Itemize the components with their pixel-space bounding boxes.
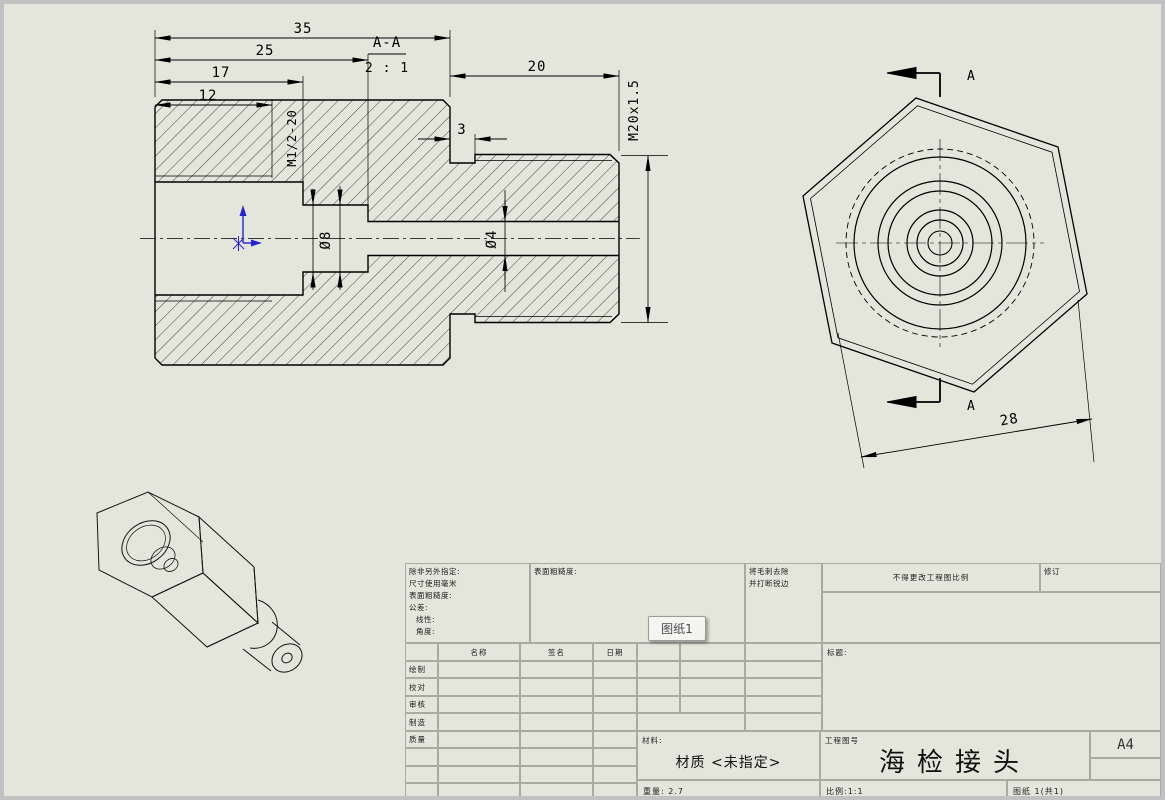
dim-12: 12 (199, 88, 218, 104)
empty-cell (1090, 758, 1161, 780)
dim-3: 3 (457, 122, 466, 138)
row-checked-label: 校对 (409, 682, 426, 693)
sig-cell (520, 696, 593, 713)
isometric-view (97, 492, 308, 678)
sig-extra-cell (637, 643, 680, 661)
sig-cell (593, 783, 637, 800)
section-arrow-label-bottom: A (967, 399, 975, 414)
revision-cell: 修订 (1040, 563, 1161, 592)
small-cell (745, 713, 822, 731)
sig-cell (438, 783, 520, 800)
sig-cell (438, 748, 520, 766)
section-cut-arrows: A A (887, 68, 975, 415)
weight-cell: 重量: 2.7 (637, 780, 820, 800)
sig-cell (637, 661, 680, 678)
sig-empty-cell (405, 748, 438, 766)
sig-cell (520, 783, 593, 800)
scale-cell: 比例:1:1 (820, 780, 1007, 800)
scale-text: 比例:1:1 (826, 786, 864, 797)
sheet-cell: 图纸 1(共1) (1007, 780, 1161, 800)
sig-corner-cell (405, 643, 438, 661)
small-cell (745, 678, 822, 696)
small-cell (745, 643, 822, 661)
sig-empty-cell (405, 783, 438, 800)
note-line: 除非另外指定: (409, 566, 526, 578)
deburr-line: 并打断锐边 (749, 578, 818, 590)
deburr-cell: 将毛刺去除 并打断锐边 (745, 563, 822, 643)
small-cell (745, 661, 822, 678)
material-value: 材质 <未指定> (638, 752, 819, 772)
note-line: 尺寸使用毫米 (409, 578, 526, 590)
sig-cell (637, 696, 680, 713)
sig-cell (680, 678, 745, 696)
sig-cell (520, 678, 593, 696)
sig-cell (593, 731, 637, 748)
sig-cell (593, 766, 637, 783)
sig-cell (680, 661, 745, 678)
sig-cell (637, 678, 680, 696)
sig-cell (593, 661, 637, 678)
paper-size-cell: A4 (1090, 731, 1161, 758)
row-mfg-label: 制造 (409, 717, 426, 728)
note-line: 线性: (409, 614, 526, 626)
row-mfg: 制造 (405, 713, 438, 731)
sig-cell (680, 696, 745, 713)
row-drawn-label: 绘制 (409, 664, 426, 675)
section-view (140, 100, 640, 365)
part-title: 海检接头 (821, 742, 1089, 779)
header-date-label: 日期 (607, 647, 624, 658)
col-header-name: 名称 (438, 643, 520, 661)
revision-label: 修订 (1041, 564, 1160, 580)
sig-cell (520, 731, 593, 748)
col-header-date: 日期 (593, 643, 637, 661)
sig-empty-cell (405, 766, 438, 783)
col-header-signature: 签名 (520, 643, 593, 661)
finish-label: 表面粗糙度: (531, 564, 744, 580)
title-label: 标题: (827, 647, 848, 658)
sig-cell (637, 713, 745, 731)
section-arrow-label-top: A (967, 69, 975, 84)
note-line: 表面粗糙度: (409, 590, 526, 602)
weight-text: 重量: 2.7 (643, 786, 684, 797)
row-qa: 质量 (405, 731, 438, 748)
section-scale: 2 : 1 (365, 61, 409, 76)
sig-cell (438, 713, 520, 731)
note-line: 角度: (409, 626, 526, 638)
sig-cell (438, 731, 520, 748)
thread-callout-internal: M1/2-20 (285, 109, 299, 167)
sig-cell (438, 661, 520, 678)
dim-28: 28 (999, 411, 1020, 430)
sig-cell (520, 661, 593, 678)
sig-cell (438, 766, 520, 783)
dim-35: 35 (294, 21, 313, 37)
row-approved: 审核 (405, 696, 438, 713)
dim-17: 17 (212, 65, 231, 81)
origin-triad (233, 205, 262, 251)
sheet-text: 图纸 1(共1) (1013, 786, 1064, 797)
section-body (155, 100, 619, 365)
do-not-scale-label: 不得更改工程图比例 (893, 572, 970, 583)
revision-area (822, 592, 1161, 643)
sig-cell (593, 748, 637, 766)
sheet-tooltip-label: 图纸1 (661, 620, 693, 637)
sig-cell (593, 678, 637, 696)
small-cell (745, 696, 822, 713)
sheet-tooltip[interactable]: 图纸1 (648, 616, 706, 641)
deburr-line: 将毛刺去除 (749, 566, 818, 578)
do-not-scale-cell: 不得更改工程图比例 (822, 563, 1040, 592)
end-view (803, 98, 1087, 392)
dim-dia4: Ø4 (484, 230, 500, 249)
row-qa-label: 质量 (409, 734, 426, 745)
section-label: A-A (373, 35, 401, 51)
row-checked: 校对 (405, 678, 438, 696)
sig-cell (438, 696, 520, 713)
sig-cell (593, 696, 637, 713)
dim-20: 20 (528, 59, 547, 75)
finish-cell: 表面粗糙度: (530, 563, 745, 643)
row-drawn: 绘制 (405, 661, 438, 678)
header-name-label: 名称 (471, 647, 488, 658)
dwg-no-cell: 工程图号 海检接头 (820, 731, 1090, 780)
dim-dia8: Ø8 (318, 231, 334, 250)
sig-cell (520, 766, 593, 783)
sig-cell (593, 713, 637, 731)
header-signature-label: 签名 (548, 647, 565, 658)
material-label: 材料: (642, 735, 663, 746)
title-area: 标题: (822, 643, 1161, 731)
sig-cell (520, 748, 593, 766)
sig-cell (438, 678, 520, 696)
sig-extra-cell (680, 643, 745, 661)
thread-callout-external: M20x1.5 (627, 79, 642, 141)
material-cell: 材料: 材质 <未指定> (637, 731, 820, 780)
sig-cell (520, 713, 593, 731)
note-line: 公差: (409, 602, 526, 614)
row-approved-label: 审核 (409, 699, 426, 710)
tolerance-notes: 除非另外指定: 尺寸使用毫米 表面粗糙度: 公差: 线性: 角度: (405, 563, 530, 643)
dim-25: 25 (256, 43, 275, 59)
paper-size: A4 (1117, 737, 1134, 753)
hex-chamfer (811, 106, 1080, 384)
